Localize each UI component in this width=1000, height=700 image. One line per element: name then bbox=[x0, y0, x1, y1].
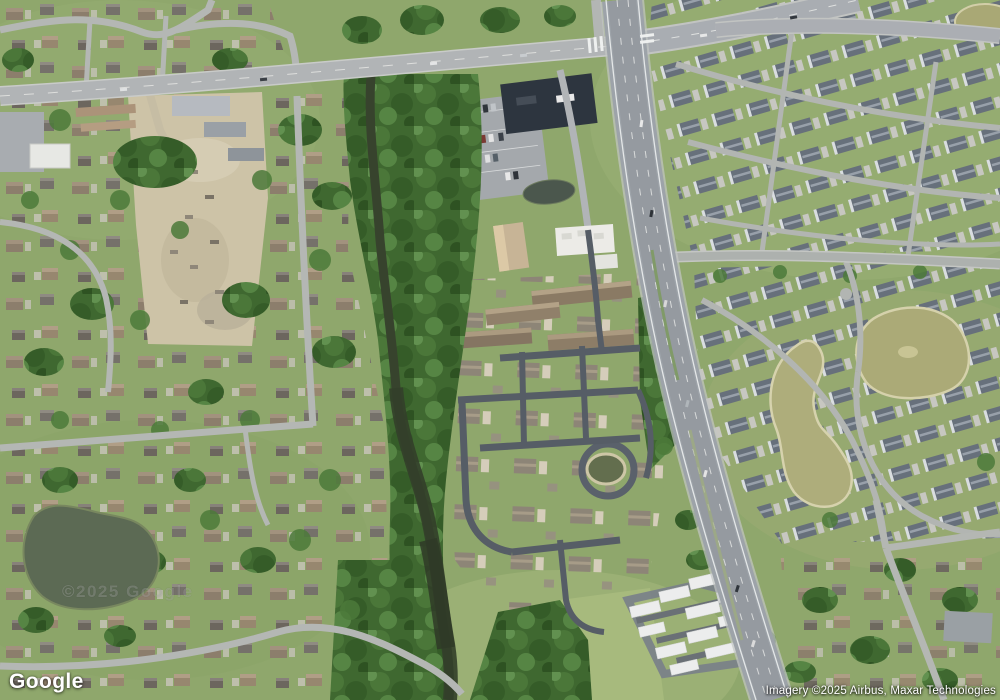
imagery-attribution: Imagery ©2025 Airbus, Maxar Technologies bbox=[766, 685, 996, 697]
mini-roundabout bbox=[840, 288, 852, 300]
parking-lot-southeast bbox=[943, 611, 993, 643]
satellite-map[interactable]: ©2025 Google Google Imagery ©2025 Airbus… bbox=[0, 0, 1000, 700]
street-to-north bbox=[596, 0, 600, 46]
google-logo[interactable]: Google bbox=[9, 670, 84, 694]
white-warehouse bbox=[30, 144, 70, 168]
apartment-building bbox=[493, 222, 529, 272]
pond-complex bbox=[587, 454, 625, 484]
warehouse-roof bbox=[172, 96, 230, 116]
yard-tree-clump bbox=[113, 136, 197, 188]
satellite-imagery bbox=[0, 0, 1000, 700]
